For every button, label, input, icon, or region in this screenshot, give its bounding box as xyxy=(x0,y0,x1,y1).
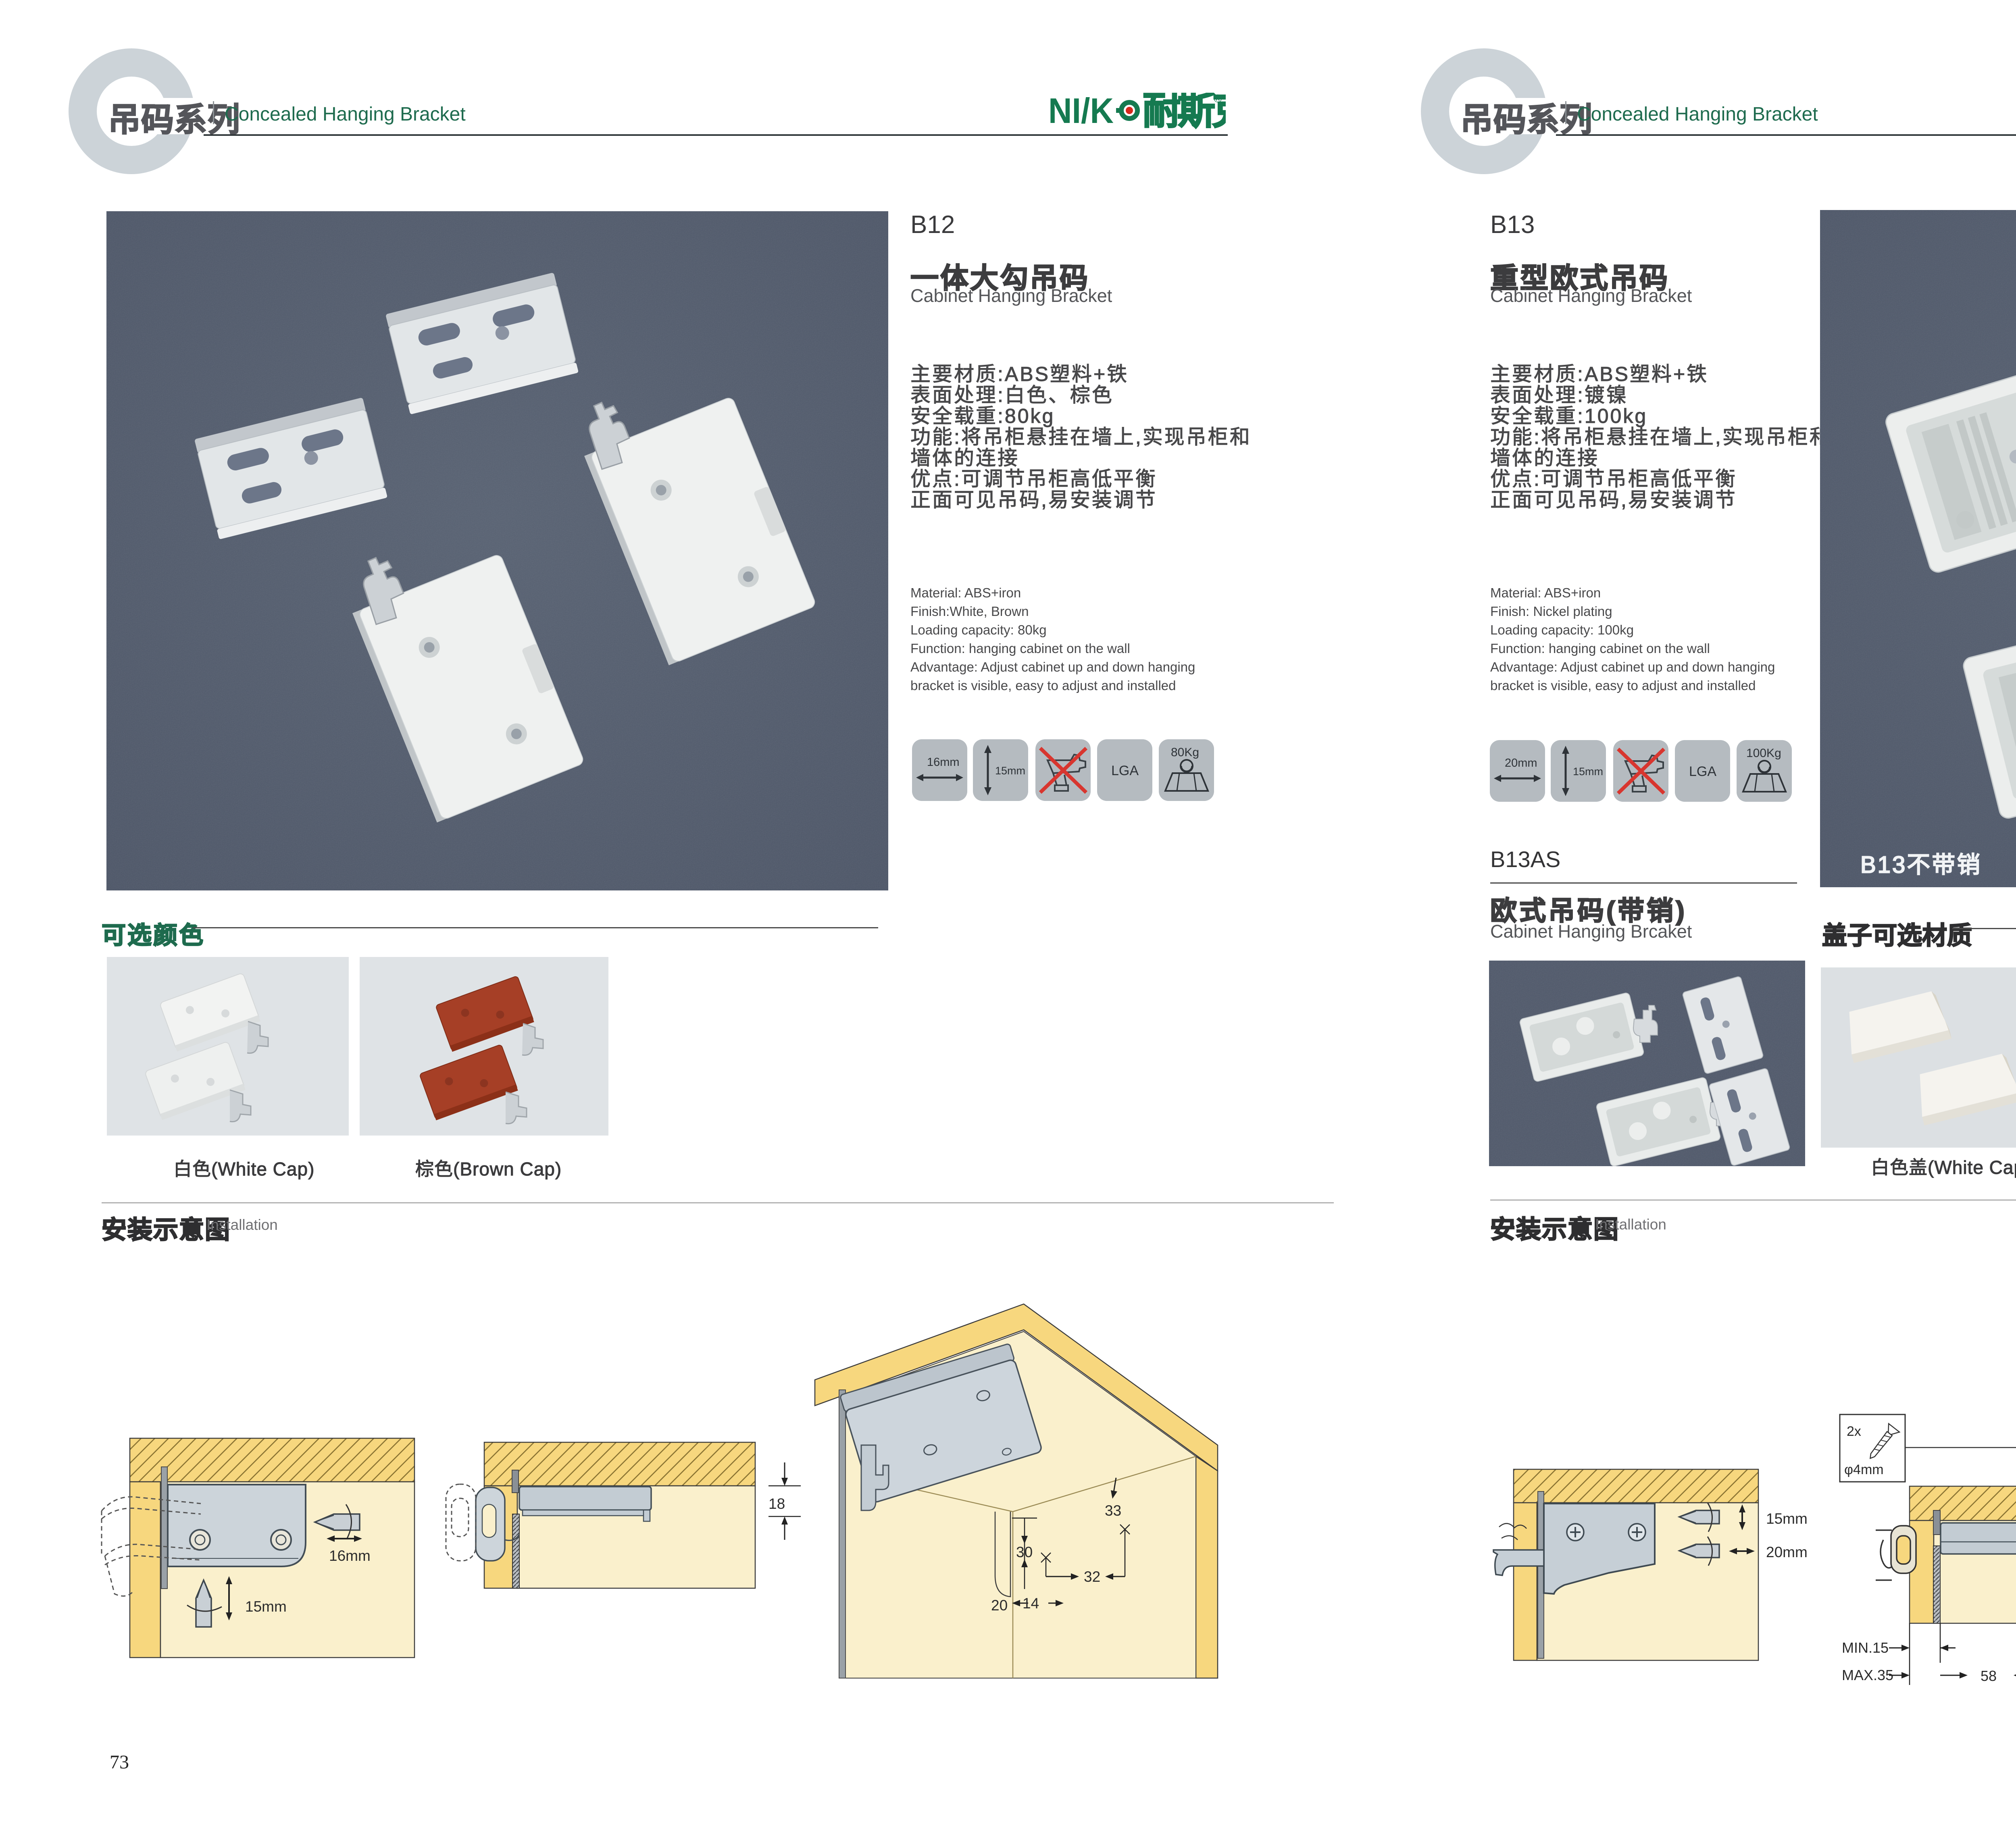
svg-text:LGA: LGA xyxy=(1689,764,1716,779)
svg-text:2x: 2x xyxy=(1847,1424,1861,1439)
svg-text:16mm: 16mm xyxy=(927,756,960,769)
svg-text:20: 20 xyxy=(991,1597,1008,1614)
svg-text:15mm: 15mm xyxy=(245,1598,287,1615)
svg-text:32: 32 xyxy=(1084,1568,1100,1585)
svg-text:NI/K: NI/K xyxy=(1048,93,1114,131)
svg-text:18: 18 xyxy=(768,1495,785,1512)
svg-text:16mm: 16mm xyxy=(329,1547,371,1564)
svg-text:MAX.35: MAX.35 xyxy=(1842,1667,1893,1683)
svg-text:20mm: 20mm xyxy=(1505,757,1537,770)
svg-text:15mm: 15mm xyxy=(1766,1510,1808,1527)
svg-text:33: 33 xyxy=(1105,1502,1121,1519)
svg-text:15mm: 15mm xyxy=(995,765,1025,777)
svg-text:30: 30 xyxy=(1016,1544,1033,1560)
svg-text:φ4mm: φ4mm xyxy=(1844,1462,1884,1477)
svg-text:®: ® xyxy=(1214,93,1222,105)
svg-text:MIN.15: MIN.15 xyxy=(1842,1639,1889,1656)
svg-text:20mm: 20mm xyxy=(1766,1544,1808,1560)
svg-text:80Kg: 80Kg xyxy=(1171,746,1199,759)
svg-text:LGA: LGA xyxy=(1111,763,1139,778)
svg-text:100Kg: 100Kg xyxy=(1746,747,1781,760)
svg-text:15mm: 15mm xyxy=(1573,765,1603,778)
svg-text:58: 58 xyxy=(1981,1668,1997,1684)
svg-text:14: 14 xyxy=(1023,1595,1039,1612)
